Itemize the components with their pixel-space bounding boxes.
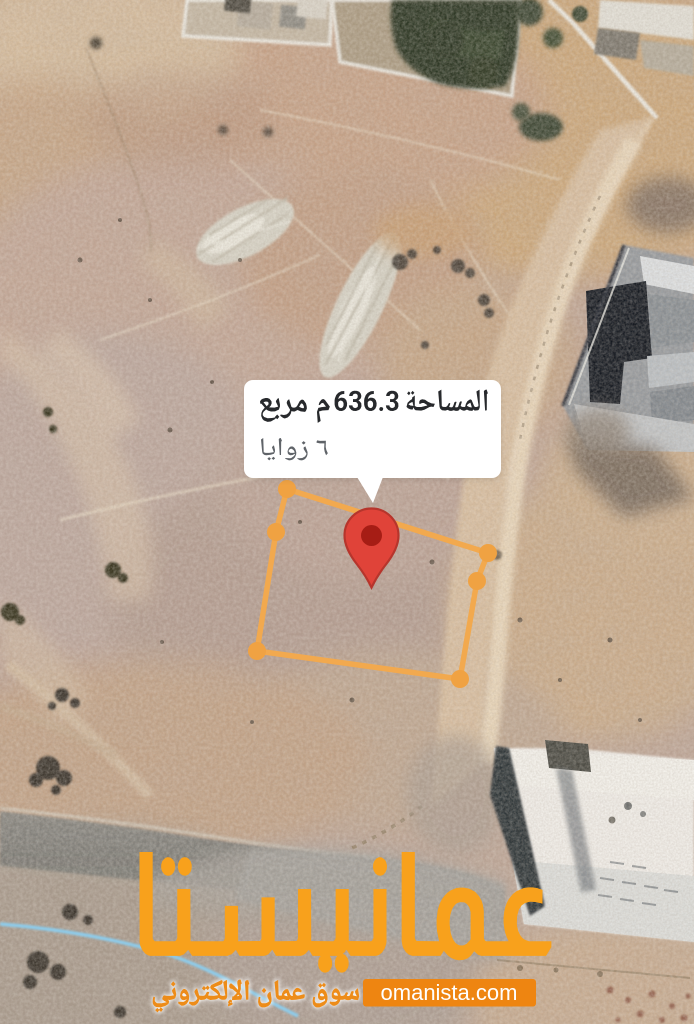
- svg-text:omanista.com: omanista.com: [381, 980, 518, 1005]
